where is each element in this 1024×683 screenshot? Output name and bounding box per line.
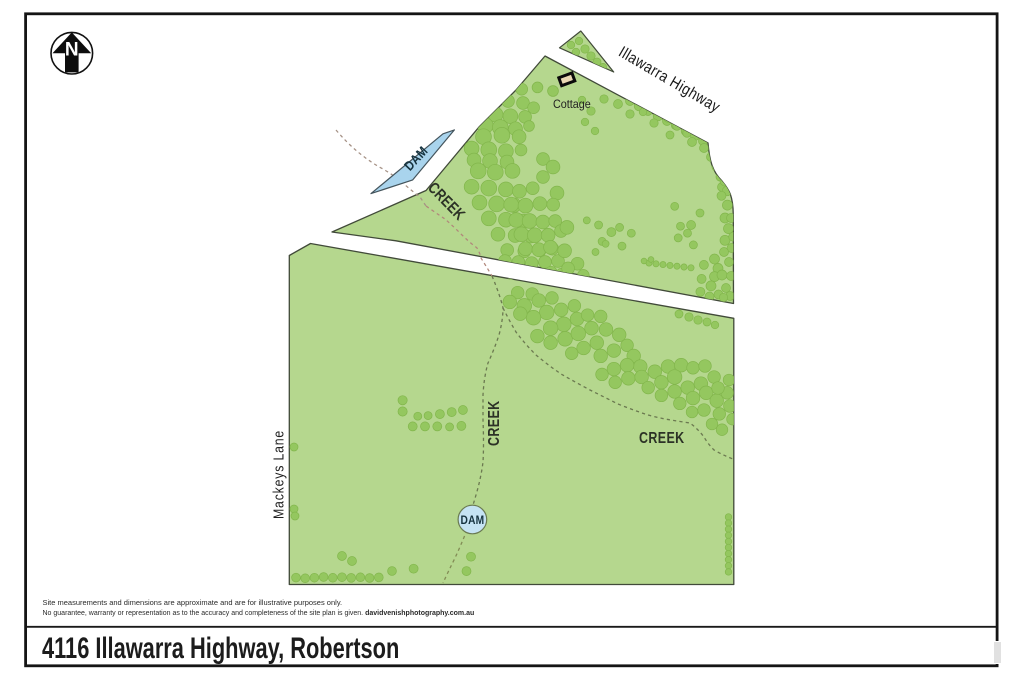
- svg-text:N: N: [65, 40, 79, 61]
- svg-text:Mackeys Lane: Mackeys Lane: [270, 430, 286, 519]
- svg-text:Site measurements and dimensio: Site measurements and dimensions are app…: [43, 598, 343, 607]
- svg-text:4116 Illawarra Highway, Robert: 4116 Illawarra Highway, Robertson: [42, 633, 399, 665]
- svg-text:Cottage: Cottage: [553, 99, 591, 112]
- svg-text:DAM: DAM: [461, 514, 485, 527]
- svg-text:No guarantee, warranty or repr: No guarantee, warranty or representation…: [43, 610, 475, 617]
- svg-text:CREEK: CREEK: [639, 430, 685, 448]
- svg-text:CREEK: CREEK: [486, 400, 504, 446]
